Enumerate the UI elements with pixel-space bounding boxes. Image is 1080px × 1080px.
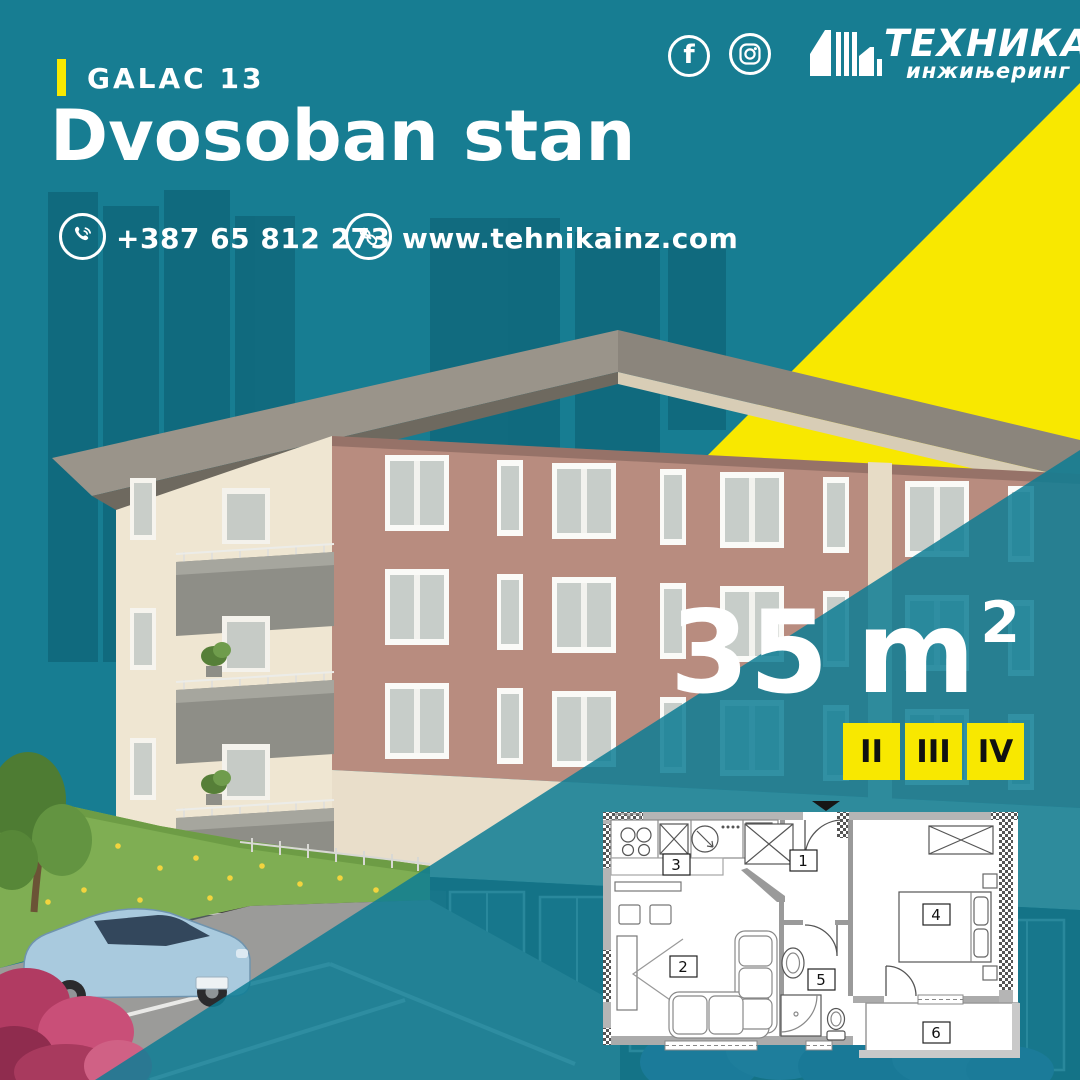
- room-label-5: 5: [816, 971, 826, 989]
- side-windows: [130, 478, 156, 800]
- brand-building-icon: [806, 24, 886, 80]
- entrance-arrow: [812, 801, 840, 811]
- phone-icon: [59, 213, 106, 260]
- project-label: GALAC 13: [87, 62, 264, 95]
- room-label-6: 6: [931, 1024, 941, 1042]
- floor-badge-IV: IV: [967, 723, 1024, 780]
- facebook-icon[interactable]: f: [668, 35, 710, 77]
- floor-badge-II: II: [843, 723, 900, 780]
- room-label-1: 1: [798, 852, 808, 870]
- facebook-glyph: f: [683, 40, 694, 70]
- room-label-2: 2: [678, 958, 688, 976]
- area-value: 35: [670, 586, 829, 719]
- brand-subtitle: инжињеринг: [906, 59, 1070, 83]
- floor-badges: II III IV: [843, 723, 1024, 780]
- floor-badge-III: III: [905, 723, 962, 780]
- room-label-4: 4: [931, 906, 941, 924]
- accent-bar: [57, 59, 66, 96]
- area-label: 35m2: [520, 596, 1020, 710]
- page-title: Dvosoban stan: [50, 100, 635, 174]
- room-label-3: 3: [671, 856, 681, 874]
- area-superscript: 2: [980, 590, 1020, 656]
- link-icon: [345, 213, 392, 260]
- area-unit: m: [857, 586, 976, 719]
- instagram-icon[interactable]: [729, 33, 771, 75]
- poster: GALAC 13 Dvosoban stan +387 65 812 273 w…: [0, 0, 1080, 1080]
- website-link[interactable]: www.tehnikainz.com: [402, 222, 738, 255]
- floor-plan: 1 2 3 4 5 6: [603, 798, 1020, 1060]
